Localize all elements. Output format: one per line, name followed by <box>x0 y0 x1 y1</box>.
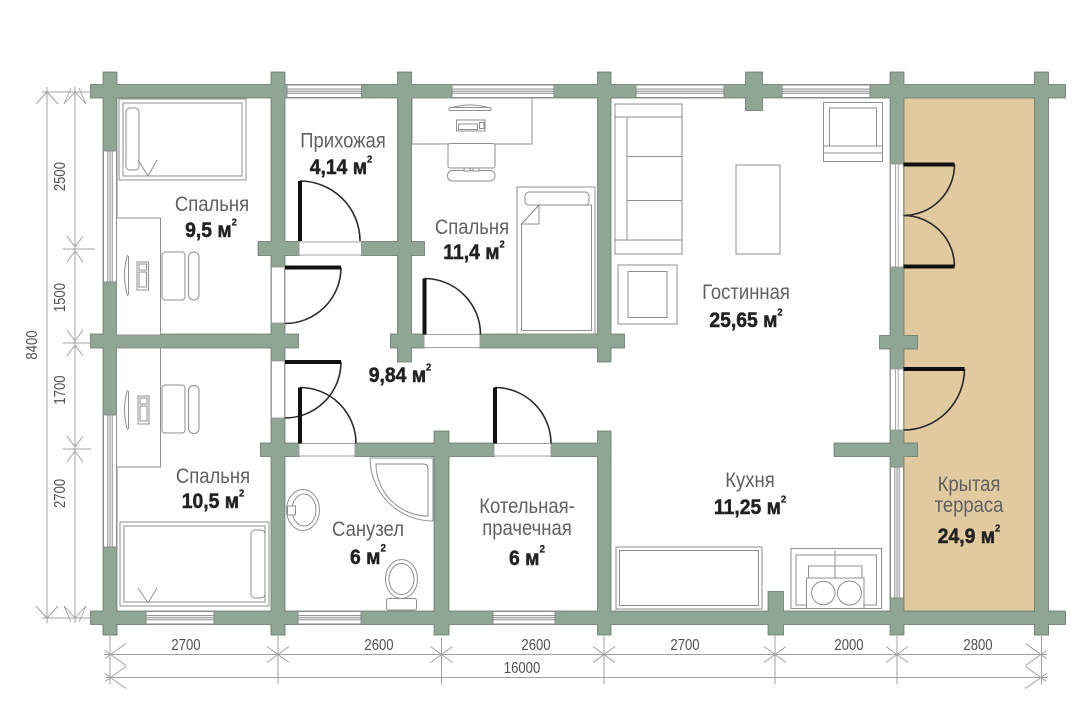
svg-text:9,84 м2: 9,84 м2 <box>369 362 432 387</box>
svg-text:24,9 м2: 24,9 м2 <box>938 523 1001 548</box>
svg-text:8400: 8400 <box>24 330 41 359</box>
svg-text:Санузел: Санузел <box>332 518 404 541</box>
svg-text:10,5 м2: 10,5 м2 <box>182 488 245 513</box>
svg-text:2700: 2700 <box>52 479 69 508</box>
svg-text:2700: 2700 <box>670 637 699 654</box>
svg-text:Кухня: Кухня <box>725 469 774 492</box>
svg-text:2500: 2500 <box>52 162 69 191</box>
svg-text:прачечная: прачечная <box>482 517 572 540</box>
svg-text:2600: 2600 <box>521 637 550 654</box>
svg-text:1700: 1700 <box>52 375 69 404</box>
svg-text:Прихожая: Прихожая <box>300 129 386 152</box>
svg-text:2000: 2000 <box>834 637 863 654</box>
svg-text:Спальня: Спальня <box>175 193 249 216</box>
svg-text:11,25 м2: 11,25 м2 <box>714 494 787 519</box>
svg-text:4,14 м2: 4,14 м2 <box>310 154 373 179</box>
svg-text:Гостинная: Гостинная <box>702 281 790 304</box>
svg-text:терраса: терраса <box>935 494 1004 517</box>
svg-text:9,5 м2: 9,5 м2 <box>185 217 237 242</box>
svg-text:2700: 2700 <box>171 637 200 654</box>
svg-text:11,4 м2: 11,4 м2 <box>443 239 505 264</box>
svg-text:16000: 16000 <box>504 660 540 677</box>
svg-text:2600: 2600 <box>364 637 393 654</box>
svg-text:25,65 м2: 25,65 м2 <box>709 307 783 332</box>
svg-text:Спальня: Спальня <box>176 465 250 488</box>
svg-text:1500: 1500 <box>52 283 69 312</box>
svg-text:Крытая: Крытая <box>938 473 1001 496</box>
svg-text:Котельная-: Котельная- <box>479 495 575 518</box>
svg-text:2800: 2800 <box>963 637 992 654</box>
svg-text:Спальня: Спальня <box>435 216 509 239</box>
